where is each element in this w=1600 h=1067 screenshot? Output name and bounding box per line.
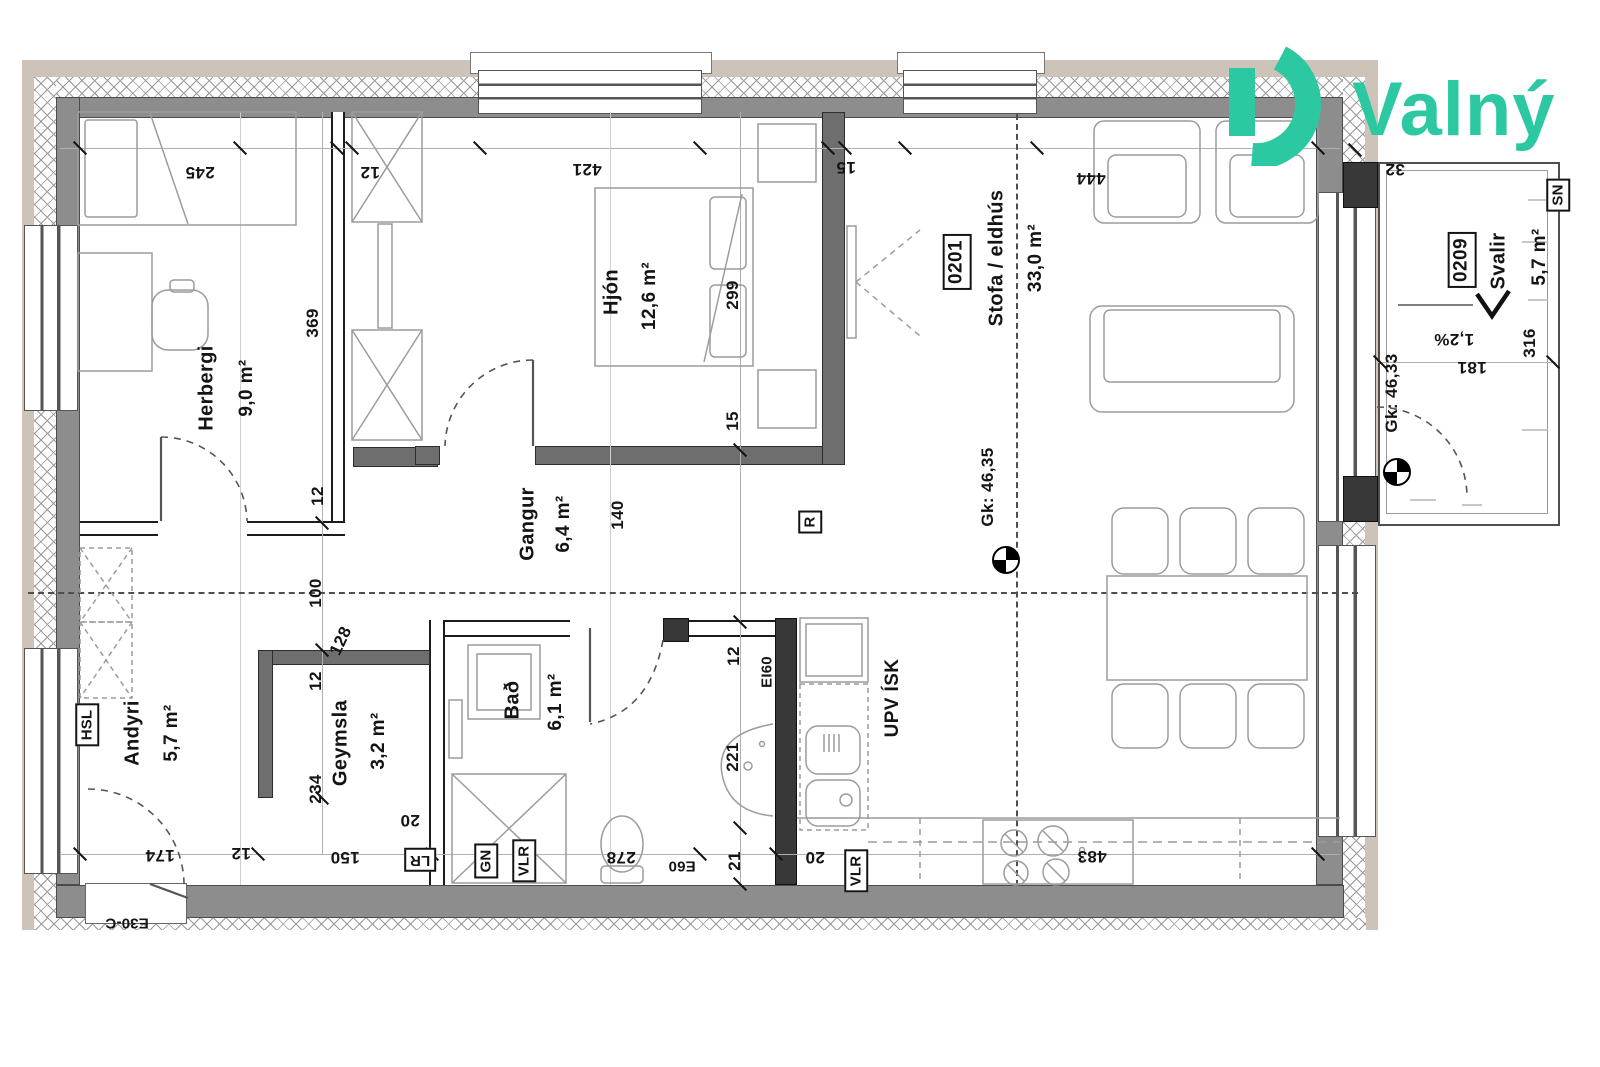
room-area-bad: 6,1 m² [545, 673, 567, 730]
dim-444: 444 [1076, 168, 1106, 188]
room-area-svalir: 5,7 m² [1529, 228, 1551, 285]
dim-15-top: 15 [836, 157, 856, 177]
dim-21: 21 [725, 851, 745, 871]
tag-sn: SN [1546, 178, 1570, 211]
dim-12-bath: 12 [724, 646, 744, 666]
floor-plan: Herbergi 9,0 m² Hjón 12,6 m² Gangur 6,4 … [0, 0, 1600, 1067]
room-label-andyri: Andyri [122, 700, 145, 766]
level-marker-stofa [992, 546, 1020, 574]
dim-369: 369 [303, 308, 323, 338]
door-swings [88, 305, 1473, 898]
tag-ei60: EI60 [759, 656, 776, 688]
dim-421: 421 [572, 159, 602, 179]
tag-lr: LR [404, 848, 436, 872]
dining-set [1107, 508, 1307, 748]
tag-e30c: E30-C [105, 915, 149, 932]
room-area-andyri: 5,7 m² [161, 704, 183, 761]
kitchen-units [797, 618, 1340, 884]
tag-r: R [798, 510, 822, 533]
bath-shelf [449, 700, 462, 758]
tag-vlr-kitchen: VLR [844, 850, 868, 893]
dim-245: 245 [185, 162, 215, 182]
level-label-svalir: Gk: 46,33 [1382, 353, 1402, 432]
shower [452, 774, 566, 883]
dim-32: 32 [1385, 159, 1405, 179]
room-area-herbergi: 9,0 m² [236, 359, 258, 416]
level-label-stofa: Gk: 46,35 [978, 447, 998, 526]
tag-hsl: HSL [75, 704, 99, 747]
room-label-bad: Bað [502, 681, 525, 720]
dim-278: 278 [606, 847, 636, 867]
dim-20-kitchen: 20 [805, 847, 825, 867]
dim-234: 234 [306, 774, 326, 804]
stove [983, 820, 1133, 885]
room-area-hjon: 12,6 m² [639, 262, 661, 330]
room-area-gangur: 6,4 m² [553, 495, 575, 552]
unit-number-stofa: 0201 [943, 234, 972, 290]
entry-wardrobe [80, 548, 132, 698]
dim-20-geymsla: 20 [400, 810, 420, 830]
room-label-gangur: Gangur [517, 487, 540, 561]
dim-12-bottom: 12 [231, 843, 251, 863]
double-bed [595, 124, 816, 428]
dim-100: 100 [306, 578, 326, 608]
level-marker-svalir [1383, 458, 1411, 486]
sofa [1090, 306, 1294, 412]
dim-316: 316 [1520, 328, 1540, 358]
dim-15-right: 15 [723, 411, 743, 431]
tag-e60: E60 [668, 858, 695, 875]
room-label-herbergi: Herbergi [196, 345, 219, 430]
dim-174: 174 [145, 845, 175, 865]
tag-gn: GN [474, 844, 498, 879]
tag-upv-isk: UPV ÍSK [882, 659, 904, 738]
brand-logo-text: Valný [1352, 66, 1556, 153]
svalir-arrow-icon [1477, 291, 1509, 316]
slope-label: 1,2% [1434, 329, 1474, 349]
unit-number-svalir: 0209 [1448, 232, 1477, 288]
room-label-svalir: Svalir [1488, 233, 1511, 290]
room-area-geymsla: 3,2 m² [368, 712, 390, 769]
tag-vlr-bath: VLR [512, 840, 536, 883]
tv-on-wall [847, 226, 920, 338]
desk-and-chair [78, 253, 208, 371]
dim-483: 483 [1077, 846, 1107, 866]
dim-181: 181 [1457, 357, 1487, 377]
brand-logo-d-icon [1222, 46, 1342, 166]
dim-150: 150 [330, 847, 360, 867]
room-label-hjon: Hjón [601, 269, 624, 315]
dim-299: 299 [723, 280, 743, 310]
room-label-stofa: Stofa / eldhús [986, 190, 1009, 327]
dim-12-closet: 12 [308, 486, 328, 506]
room-label-geymsla: Geymsla [330, 700, 353, 786]
dim-140: 140 [608, 500, 628, 530]
dim-221: 221 [723, 742, 743, 772]
room-area-stofa: 33,0 m² [1025, 224, 1047, 292]
dim-12-top: 12 [360, 162, 380, 182]
dim-12-geymsla: 12 [306, 671, 326, 691]
